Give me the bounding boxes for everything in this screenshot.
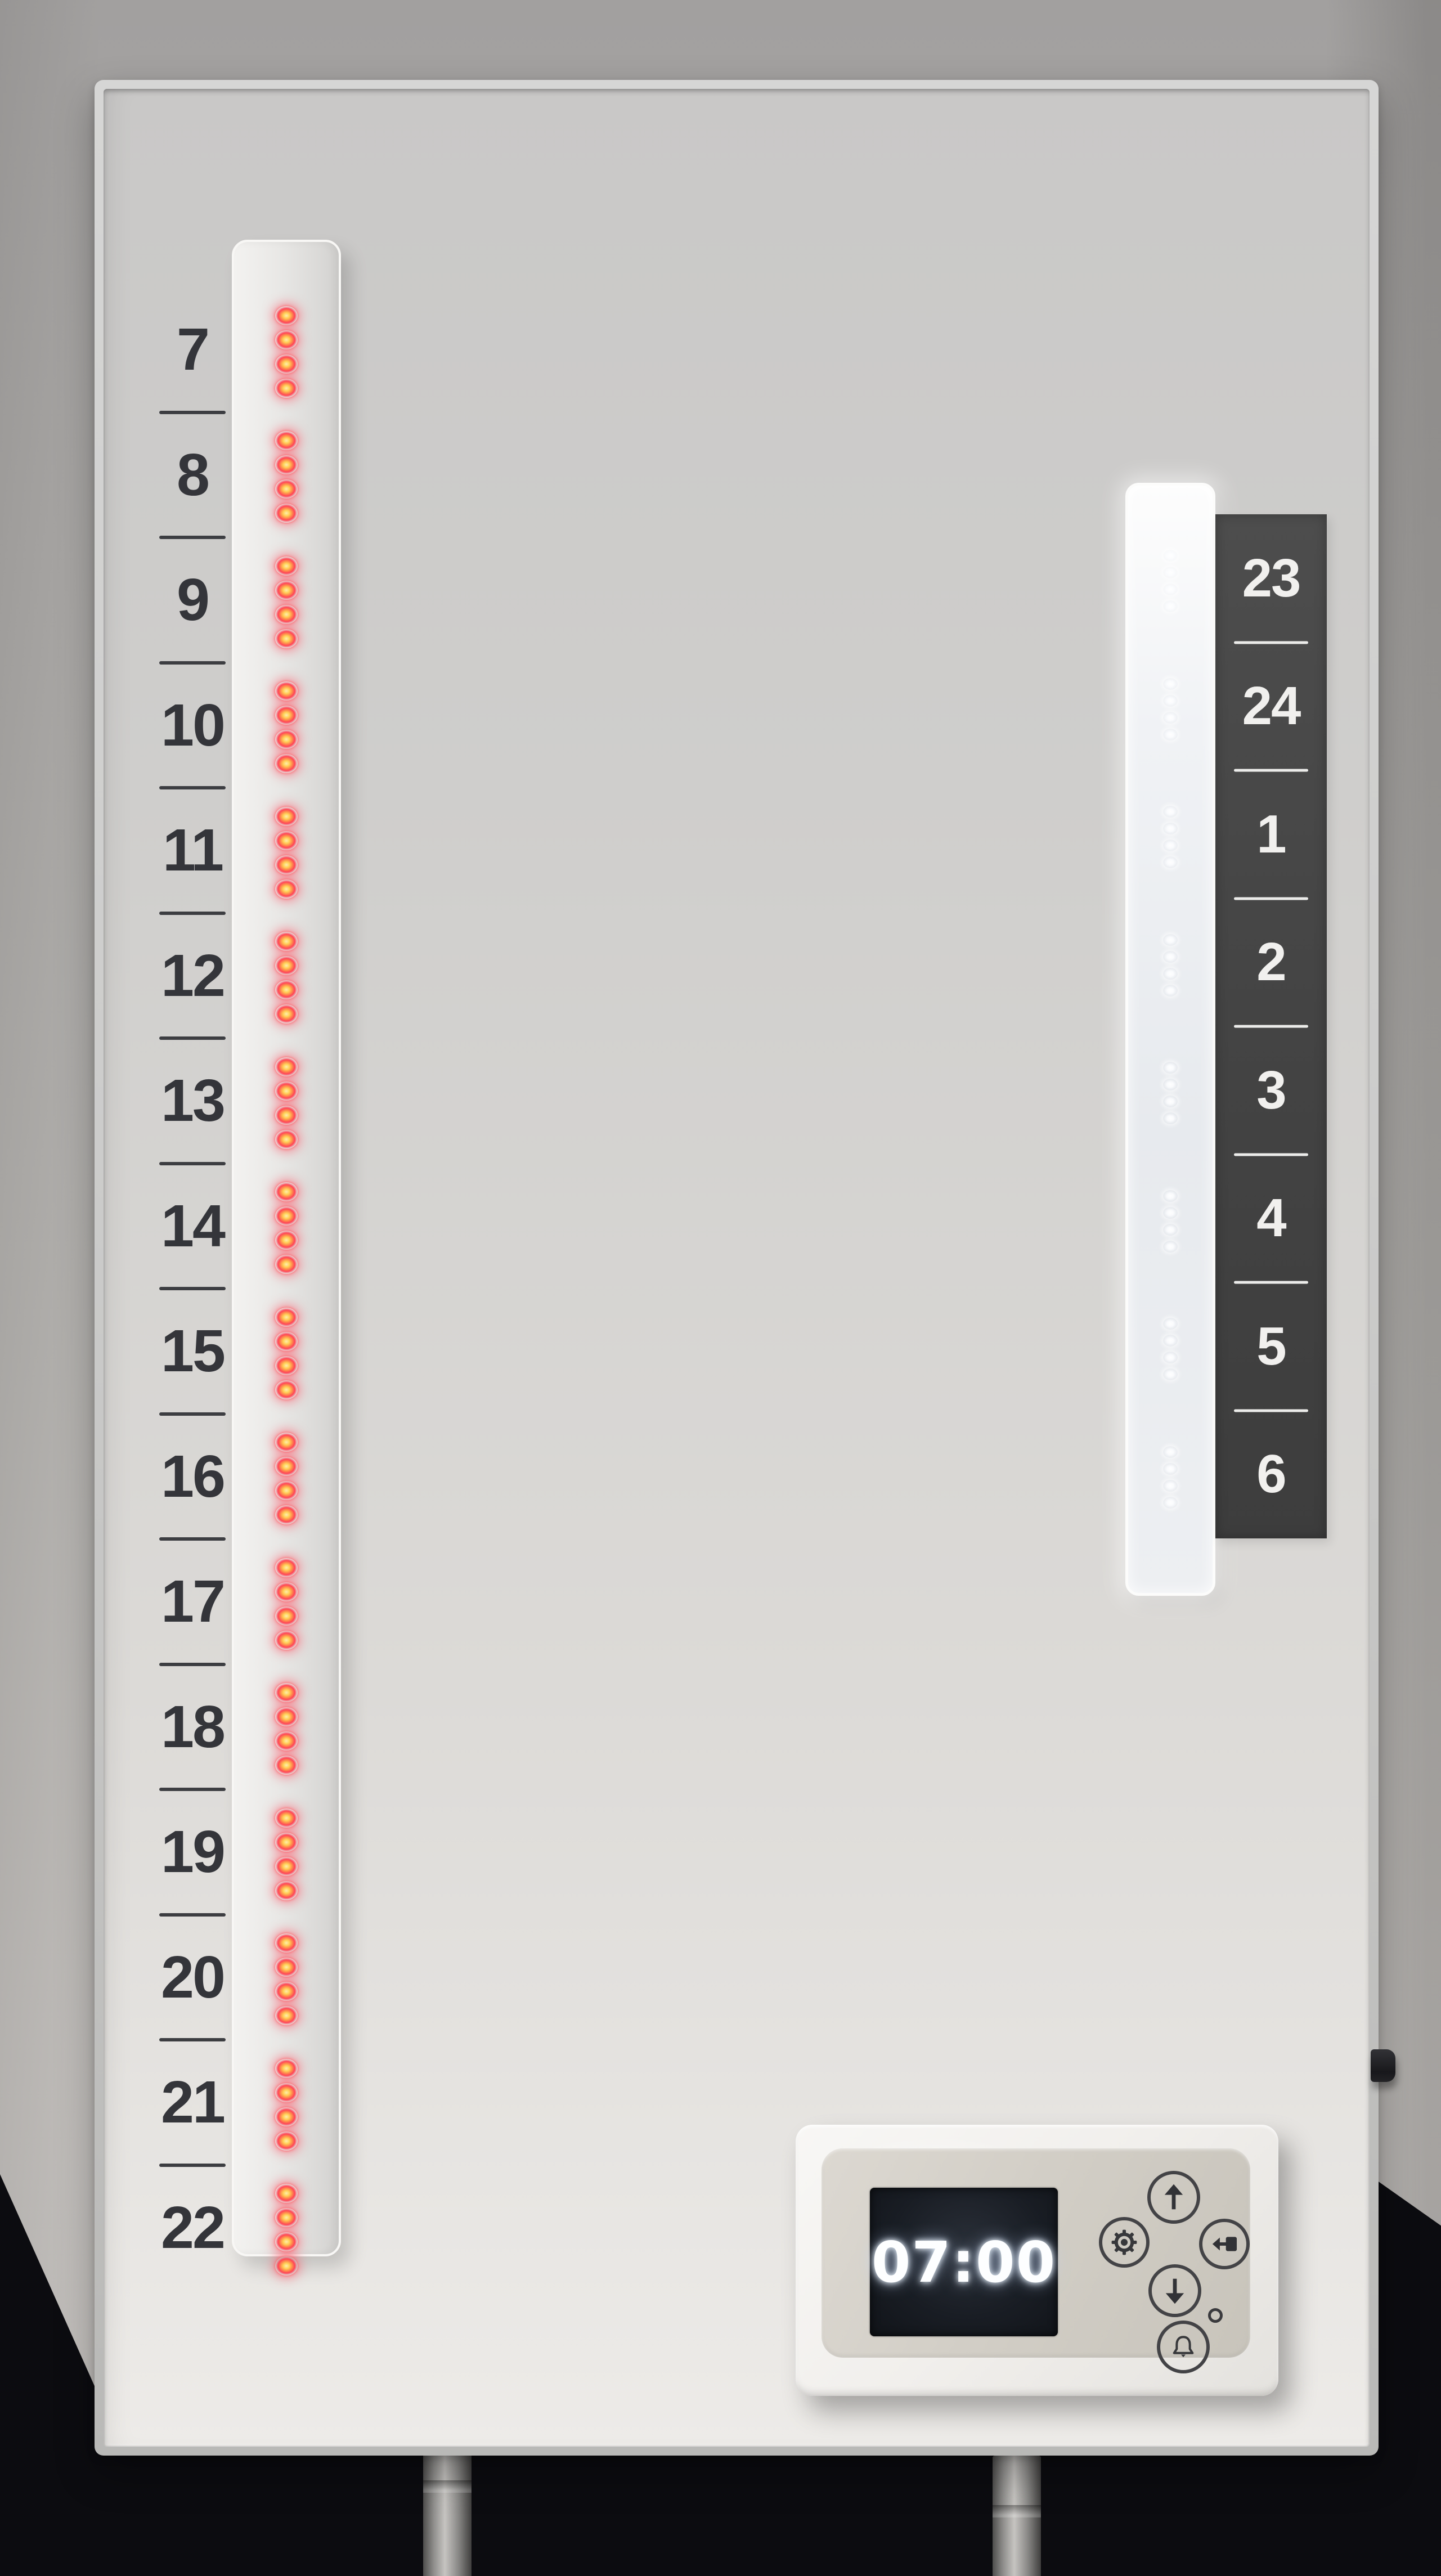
led-unlit xyxy=(1163,1062,1178,1074)
led-lit xyxy=(275,1106,298,1125)
led-group xyxy=(275,2059,298,2151)
led-group xyxy=(275,1182,298,1274)
hour-tick xyxy=(159,912,226,915)
led-lit xyxy=(275,2184,298,2203)
alarm-indicator-ring xyxy=(1208,2308,1223,2323)
hour-tick xyxy=(159,536,226,539)
hour-label: 22 xyxy=(161,2198,224,2258)
hour-row: 2 xyxy=(1215,899,1327,1027)
hour-label: 8 xyxy=(177,445,208,505)
hour-row: 5 xyxy=(1215,1282,1327,1411)
led-group xyxy=(275,431,298,523)
night-led-group xyxy=(1163,678,1178,741)
scene: 78910111213141516171819202122 2324123456… xyxy=(0,0,1441,2576)
hour-tick xyxy=(159,1788,226,1791)
hour-tick xyxy=(1234,1025,1308,1028)
hour-row: 3 xyxy=(1215,1026,1327,1155)
led-lit xyxy=(275,1558,298,1577)
led-group xyxy=(275,807,298,899)
led-lit xyxy=(275,1683,298,1702)
led-lit xyxy=(275,379,298,398)
led-lit xyxy=(275,855,298,874)
led-unlit xyxy=(1163,678,1178,690)
led-unlit xyxy=(1163,567,1178,578)
night-led-rows xyxy=(1128,517,1213,1541)
led-lit xyxy=(275,431,298,450)
night-led-group xyxy=(1163,550,1178,612)
hour-tick xyxy=(1234,1153,1308,1156)
led-lit xyxy=(275,932,298,951)
led-lit xyxy=(275,1182,298,1201)
led-lit xyxy=(275,1582,298,1601)
led-group xyxy=(275,1933,298,2025)
hour-tick xyxy=(1234,641,1308,644)
hour-tick xyxy=(159,1412,226,1416)
led-unlit xyxy=(1163,729,1178,741)
hour-label: 13 xyxy=(161,1071,224,1130)
led-lit xyxy=(275,754,298,773)
hour-label: 12 xyxy=(161,946,224,1006)
hour-row: 4 xyxy=(1215,1155,1327,1283)
led-lit xyxy=(275,1731,298,1751)
led-lit xyxy=(275,1756,298,1775)
led-lit xyxy=(275,1004,298,1024)
control-keypad: 07:00 xyxy=(821,2148,1250,2358)
night-led-group xyxy=(1163,1318,1178,1380)
settings-button[interactable] xyxy=(1099,2217,1150,2268)
led-lit xyxy=(275,1356,298,1375)
time-value: 07:00 xyxy=(872,2229,1056,2295)
led-unlit xyxy=(1163,1497,1178,1509)
led-group xyxy=(275,1558,298,1650)
led-lit xyxy=(275,1631,298,1650)
led-group xyxy=(275,1808,298,1900)
led-lit xyxy=(275,1057,298,1076)
led-lit xyxy=(275,1606,298,1626)
hour-label: 19 xyxy=(161,1822,224,1882)
hour-label: 17 xyxy=(161,1572,224,1631)
led-lit xyxy=(275,831,298,850)
led-lit xyxy=(275,1958,298,1977)
led-lit xyxy=(275,1481,298,1500)
hour-tick xyxy=(159,1287,226,1290)
led-lit xyxy=(275,605,298,624)
hour-label: 3 xyxy=(1256,1063,1285,1118)
confirm-button[interactable] xyxy=(1199,2219,1250,2269)
side-knob[interactable] xyxy=(1371,2049,1395,2082)
panel-face: 78910111213141516171819202122 2324123456… xyxy=(104,89,1370,2447)
up-button[interactable] xyxy=(1147,2171,1200,2224)
hour-label: 4 xyxy=(1256,1191,1285,1245)
time-display: 07:00 xyxy=(870,2188,1058,2336)
led-unlit xyxy=(1163,1446,1178,1458)
hour-label: 6 xyxy=(1256,1447,1285,1501)
time-panel: 78910111213141516171819202122 2324123456… xyxy=(95,80,1379,2456)
led-unlit xyxy=(1163,712,1178,724)
led-lit xyxy=(275,581,298,600)
led-lit xyxy=(275,1808,298,1828)
led-unlit xyxy=(1163,1096,1178,1107)
hour-tick xyxy=(159,661,226,665)
led-lit xyxy=(275,1857,298,1876)
hour-label: 16 xyxy=(161,1447,224,1506)
led-lit xyxy=(275,2059,298,2078)
hour-tick xyxy=(159,1663,226,1666)
led-lit xyxy=(275,1308,298,1327)
hour-tick xyxy=(159,1913,226,1917)
led-lit xyxy=(275,2083,298,2102)
hour-tick xyxy=(1234,897,1308,900)
led-unlit xyxy=(1163,1352,1178,1363)
hour-tick xyxy=(159,2038,226,2041)
hour-label: 10 xyxy=(161,695,224,755)
led-unlit xyxy=(1163,985,1178,997)
led-unlit xyxy=(1163,600,1178,612)
led-lit xyxy=(275,807,298,826)
led-lit xyxy=(275,1457,298,1476)
hour-label: 24 xyxy=(1242,679,1300,733)
night-led-group xyxy=(1163,806,1178,868)
led-lit xyxy=(275,2232,298,2251)
led-unlit xyxy=(1163,840,1178,851)
night-led-group xyxy=(1163,1446,1178,1509)
hour-row: 1 xyxy=(1215,770,1327,899)
led-lit xyxy=(275,681,298,701)
led-lit xyxy=(275,2107,298,2126)
led-lit xyxy=(275,1881,298,1900)
led-lit xyxy=(275,1380,298,1399)
hour-label: 2 xyxy=(1256,935,1285,989)
hour-label: 7 xyxy=(177,320,208,379)
alarm-button[interactable] xyxy=(1157,2321,1210,2373)
led-unlit xyxy=(1163,856,1178,868)
led-unlit xyxy=(1163,968,1178,980)
led-group xyxy=(275,2184,298,2276)
led-group xyxy=(275,1057,298,1149)
led-lit xyxy=(275,1982,298,2001)
led-group xyxy=(275,681,298,773)
led-lit xyxy=(275,330,298,349)
control-panel: 07:00 xyxy=(796,2125,1278,2396)
led-lit xyxy=(275,706,298,725)
led-unlit xyxy=(1163,1318,1178,1330)
led-unlit xyxy=(1163,1224,1178,1236)
led-unlit xyxy=(1163,584,1178,595)
led-lit xyxy=(275,306,298,325)
led-unlit xyxy=(1163,1480,1178,1492)
led-group xyxy=(275,1308,298,1399)
hour-tick xyxy=(159,1036,226,1040)
hour-tick xyxy=(159,411,226,414)
led-lit xyxy=(275,2131,298,2151)
night-led-group xyxy=(1163,1062,1178,1124)
led-lit xyxy=(275,2256,298,2276)
led-lit xyxy=(275,1130,298,1149)
hour-label: 5 xyxy=(1256,1320,1285,1374)
hour-label: 9 xyxy=(177,570,208,630)
night-led-group xyxy=(1163,934,1178,997)
led-lit xyxy=(275,980,298,999)
led-lit xyxy=(275,879,298,899)
hour-tick xyxy=(1234,1281,1308,1284)
hour-tick xyxy=(159,1537,226,1541)
led-unlit xyxy=(1163,1079,1178,1090)
led-group xyxy=(275,1683,298,1775)
hour-row: 24 xyxy=(1215,643,1327,771)
hour-label: 1 xyxy=(1256,807,1285,861)
led-lit xyxy=(275,1332,298,1351)
led-unlit xyxy=(1163,550,1178,562)
led-lit xyxy=(275,504,298,523)
led-lit xyxy=(275,479,298,499)
night-led-strip xyxy=(1125,483,1215,1596)
led-unlit xyxy=(1163,1463,1178,1475)
led-lit xyxy=(275,1081,298,1101)
hour-label: 11 xyxy=(163,820,222,880)
led-lit xyxy=(275,455,298,474)
leg-joint xyxy=(423,2480,472,2493)
hour-tick xyxy=(159,1162,226,1165)
led-lit xyxy=(275,1933,298,1953)
night-hour-scale: 2324123456 xyxy=(1215,514,1327,1538)
led-lit xyxy=(275,2208,298,2227)
hour-label: 14 xyxy=(161,1196,224,1256)
led-unlit xyxy=(1163,951,1178,963)
led-unlit xyxy=(1163,1112,1178,1124)
hour-row: 23 xyxy=(1215,514,1327,643)
led-unlit xyxy=(1163,1241,1178,1253)
led-lit xyxy=(275,956,298,975)
led-lit xyxy=(275,557,298,576)
led-lit xyxy=(275,1433,298,1452)
led-unlit xyxy=(1163,1190,1178,1202)
led-lit xyxy=(275,629,298,648)
day-led-rows xyxy=(234,289,339,2292)
leg-joint xyxy=(993,2505,1041,2517)
hour-label: 23 xyxy=(1242,551,1300,605)
stand-leg-right xyxy=(993,2456,1041,2576)
led-lit xyxy=(275,2006,298,2025)
led-unlit xyxy=(1163,695,1178,707)
arrow-up-icon xyxy=(1157,2181,1190,2214)
down-button[interactable] xyxy=(1148,2264,1201,2317)
led-group xyxy=(275,932,298,1024)
led-group xyxy=(275,306,298,398)
hour-label: 20 xyxy=(161,1947,224,2007)
night-led-group xyxy=(1163,1190,1178,1253)
hour-tick xyxy=(1234,1409,1308,1412)
led-unlit xyxy=(1163,823,1178,834)
led-group xyxy=(275,1433,298,1524)
arrow-down-icon xyxy=(1159,2274,1191,2307)
hour-label: 18 xyxy=(161,1697,224,1757)
hour-tick xyxy=(1234,769,1308,772)
led-lit xyxy=(275,1505,298,1524)
led-unlit xyxy=(1163,1368,1178,1380)
hour-label: 15 xyxy=(161,1321,224,1381)
enter-arrow-icon xyxy=(1209,2229,1240,2259)
led-lit xyxy=(275,1833,298,1852)
gear-icon xyxy=(1108,2227,1140,2258)
led-lit xyxy=(275,1255,298,1274)
bell-icon xyxy=(1168,2331,1199,2363)
led-lit xyxy=(275,354,298,374)
hour-tick xyxy=(159,2164,226,2167)
led-lit xyxy=(275,1707,298,1726)
led-unlit xyxy=(1163,1207,1178,1219)
led-lit xyxy=(275,1231,298,1250)
led-unlit xyxy=(1163,1335,1178,1347)
led-lit xyxy=(275,730,298,749)
led-lit xyxy=(275,1206,298,1226)
hour-tick xyxy=(159,786,226,789)
led-unlit xyxy=(1163,934,1178,946)
hour-label: 21 xyxy=(161,2072,224,2132)
day-led-strip xyxy=(232,240,341,2256)
hour-row: 6 xyxy=(1215,1411,1327,1539)
led-unlit xyxy=(1163,806,1178,818)
led-group xyxy=(275,557,298,648)
